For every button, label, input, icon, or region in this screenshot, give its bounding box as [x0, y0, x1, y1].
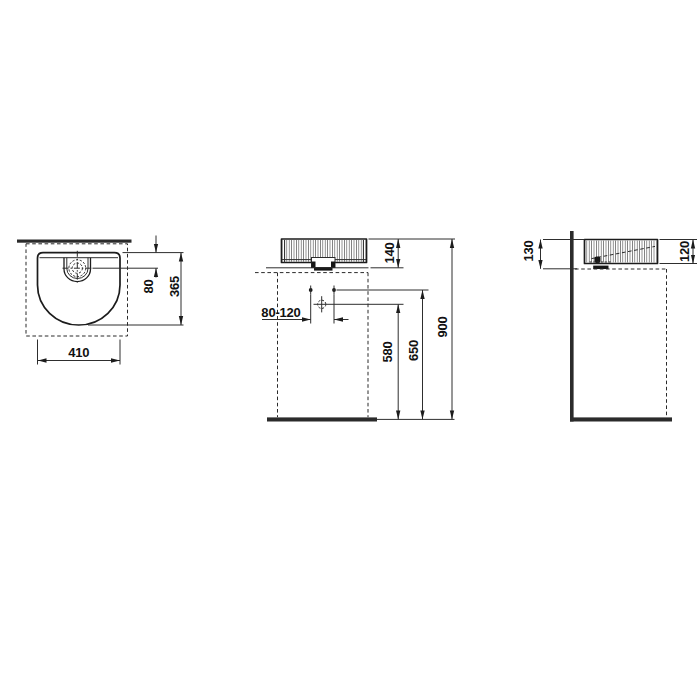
dim-rim-height-label: 900 [435, 316, 450, 337]
top-view: 80 365 410 [17, 236, 184, 365]
floor-bar [570, 417, 672, 421]
drain-fitting-detail [331, 262, 335, 268]
drain-fitting-flange [593, 266, 608, 269]
dim-drain-outlet-height-label: 580 [380, 341, 395, 362]
floor-bar [267, 417, 377, 421]
side-view: 130 120 [521, 231, 697, 422]
dim-basin-width-label: 410 [68, 345, 89, 360]
dim-height-to-counter-label: 130 [521, 240, 536, 261]
washbasin-dimension-drawing: 80 365 410 [0, 0, 700, 700]
dim-side-basin-height-label: 120 [677, 241, 692, 262]
drain-fitting-detail [312, 262, 316, 268]
dim-fixing-holes-height-label: 650 [406, 340, 421, 361]
dim-basin-height-label: 140 [382, 242, 397, 263]
dim-fixing-hole-spacing-label: 80-120 [261, 305, 300, 320]
dim-drain-offset-label: 80 [141, 279, 156, 293]
front-view: 80-120 140 580 650 900 [255, 239, 455, 422]
wall-bar [570, 231, 574, 422]
wall-section-bar [17, 240, 132, 243]
technical-drawing-page: 80 365 410 [0, 0, 700, 700]
dim-basin-depth-label: 365 [167, 276, 182, 297]
